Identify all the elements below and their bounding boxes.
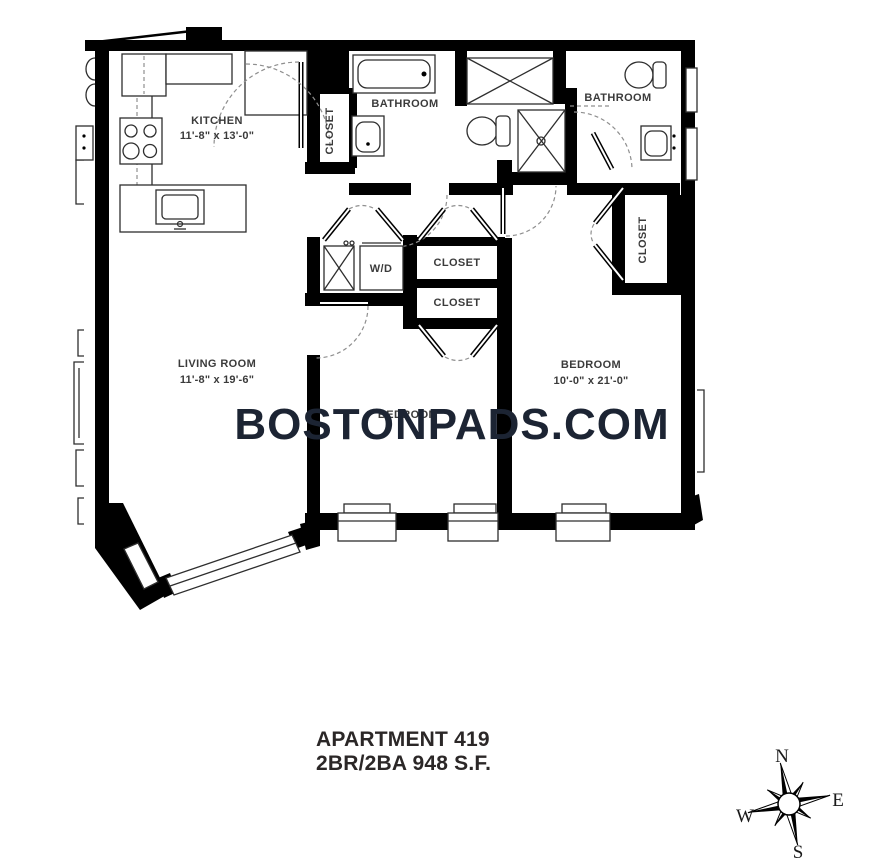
closet1-label: CLOSET xyxy=(433,257,480,269)
bathroom1-sink xyxy=(352,116,384,156)
apartment-title: APARTMENT 419 xyxy=(316,728,491,752)
bathroom1-label: BATHROOM xyxy=(371,98,438,110)
compass-e: E xyxy=(832,790,844,811)
stove xyxy=(120,118,162,164)
utility-box xyxy=(467,58,553,104)
title-block: APARTMENT 419 2BR/2BA 948 S.F. xyxy=(316,728,491,776)
refrigerator xyxy=(122,54,166,96)
window xyxy=(556,504,610,541)
kitchen-sink xyxy=(120,185,246,232)
compass-w: W xyxy=(736,806,754,827)
floor-plan-page: KITCHEN 11'-8" x 13'-0" BATHROOM BATHROO… xyxy=(0,0,870,864)
compass-n: N xyxy=(775,746,789,767)
window xyxy=(338,504,396,541)
watermark-text: BOSTONPADS.COM xyxy=(234,400,669,450)
apartment-subtitle: 2BR/2BA 948 S.F. xyxy=(316,752,491,776)
washer-dryer-label: W/D xyxy=(370,263,393,275)
entry-closet-label: CLOSET xyxy=(324,107,336,154)
living-room-dims: 11'-8" x 19'-6" xyxy=(180,374,254,386)
right-closet-label: CLOSET xyxy=(637,216,649,263)
kitchen-dims: 11'-8" x 13'-0" xyxy=(180,130,254,142)
wall-brackets xyxy=(74,58,704,524)
living-room-label: LIVING ROOM xyxy=(178,358,256,370)
compass-star xyxy=(739,754,839,854)
bathtub xyxy=(353,55,435,93)
toilet xyxy=(467,116,510,146)
bedroom2-dims: 10'-0" x 21'-0" xyxy=(554,375,629,387)
compass-s: S xyxy=(793,842,804,863)
closet2-label: CLOSET xyxy=(433,297,480,309)
shower xyxy=(518,110,565,172)
toilet xyxy=(625,62,666,88)
bathroom2-door xyxy=(570,106,632,170)
bathroom2-label: BATHROOM xyxy=(584,92,651,104)
window xyxy=(448,504,498,541)
compass-rose: N E W S xyxy=(736,746,844,863)
bathroom2-sink xyxy=(641,126,676,160)
kitchen-label: KITCHEN xyxy=(191,115,243,127)
bedroom2-label: BEDROOM xyxy=(561,359,621,371)
bedroom1-door xyxy=(316,303,368,358)
